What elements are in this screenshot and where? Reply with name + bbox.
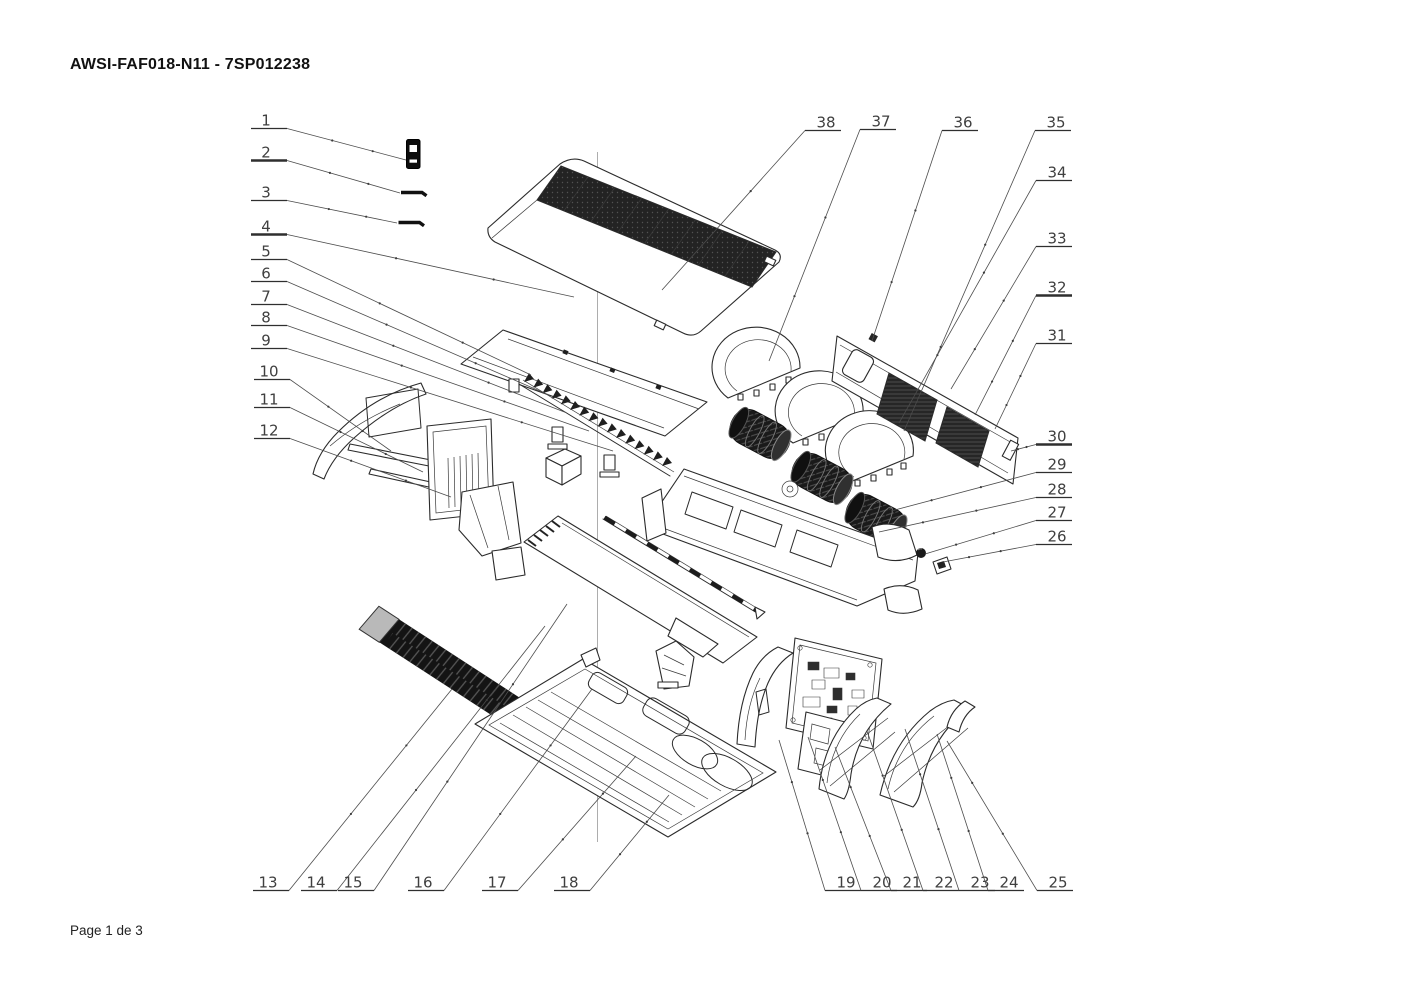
callout-3: 3 bbox=[251, 184, 397, 224]
leader-dot bbox=[549, 744, 551, 746]
leader-dot bbox=[379, 302, 381, 304]
leader-dot bbox=[329, 172, 331, 174]
leader-dot bbox=[415, 789, 417, 791]
leader-line bbox=[951, 247, 1036, 390]
leader-dot bbox=[974, 348, 976, 350]
leader-dot bbox=[488, 382, 490, 384]
part-number: 36 bbox=[953, 114, 972, 132]
callout-26: 26 bbox=[943, 528, 1072, 563]
leader-line bbox=[872, 131, 942, 342]
left-end-cap bbox=[313, 383, 426, 479]
part-number: 25 bbox=[1048, 874, 1067, 892]
part-number: 13 bbox=[258, 874, 277, 892]
leader-dot bbox=[968, 830, 970, 832]
top-cover bbox=[488, 159, 780, 335]
leader-dot bbox=[372, 150, 374, 152]
leader-dot bbox=[750, 190, 752, 192]
leader-dot bbox=[328, 208, 330, 210]
callout-31: 31 bbox=[995, 327, 1072, 430]
leader-dot bbox=[950, 777, 952, 779]
leader-dot bbox=[1000, 550, 1002, 552]
part-number: 31 bbox=[1047, 327, 1066, 345]
leader-line bbox=[287, 129, 406, 161]
leader-dot bbox=[405, 744, 407, 746]
leader-dot bbox=[395, 257, 397, 259]
leader-dot bbox=[646, 821, 648, 823]
leader-dot bbox=[410, 386, 412, 388]
leader-dot bbox=[937, 828, 939, 830]
mounting-bar-part bbox=[399, 223, 425, 226]
part-number: 10 bbox=[259, 363, 278, 381]
leader-dot bbox=[619, 853, 621, 855]
part-number: 35 bbox=[1046, 114, 1065, 132]
part-number: 27 bbox=[1047, 504, 1066, 522]
leader-dot bbox=[882, 775, 884, 777]
part-number: 12 bbox=[259, 422, 278, 440]
part-number: 26 bbox=[1047, 528, 1066, 546]
part-number: 28 bbox=[1047, 481, 1066, 499]
leader-dot bbox=[931, 499, 933, 501]
air-duct-wedge bbox=[459, 482, 525, 580]
leader-dot bbox=[327, 406, 329, 408]
drawing-sheet: AWSI-FAF018-N11 - 7SP012238 bbox=[0, 0, 1410, 997]
remote-control bbox=[407, 140, 421, 169]
leader-dot bbox=[521, 421, 523, 423]
leader-dot bbox=[562, 838, 564, 840]
leader-dot bbox=[984, 244, 986, 246]
leader-dot bbox=[339, 431, 341, 433]
leader-dot bbox=[475, 362, 477, 364]
leader-line bbox=[835, 747, 891, 891]
leader-dot bbox=[350, 460, 352, 462]
leader-line bbox=[290, 439, 451, 498]
leader-dot bbox=[1005, 404, 1007, 406]
leader-dot bbox=[793, 295, 795, 297]
leader-dot bbox=[919, 773, 921, 775]
callout-25: 25 bbox=[947, 741, 1073, 892]
callout-5: 5 bbox=[251, 243, 531, 376]
leader-dot bbox=[1002, 833, 1004, 835]
leader-dot bbox=[1003, 300, 1005, 302]
leader-dot bbox=[512, 683, 514, 685]
leader-dot bbox=[991, 380, 993, 382]
leader-line bbox=[943, 545, 1036, 563]
leader-line bbox=[769, 130, 860, 362]
part-number: 20 bbox=[872, 874, 891, 892]
part-number: 30 bbox=[1047, 428, 1066, 446]
leader-dot bbox=[701, 244, 703, 246]
part-number: 37 bbox=[871, 113, 890, 131]
leader-line bbox=[289, 689, 452, 891]
leader-dot bbox=[392, 345, 394, 347]
leader-dot bbox=[840, 831, 842, 833]
part-number: 9 bbox=[261, 332, 271, 350]
leader-line bbox=[975, 296, 1036, 416]
part-number: 8 bbox=[261, 309, 271, 327]
part-number: 22 bbox=[934, 874, 953, 892]
part-number: 19 bbox=[836, 874, 855, 892]
leader-dot bbox=[869, 835, 871, 837]
part-number: 33 bbox=[1047, 230, 1066, 248]
mounting-bar-part bbox=[401, 193, 427, 196]
leader-dot bbox=[940, 346, 942, 348]
leader-dot bbox=[968, 556, 970, 558]
leader-line bbox=[287, 201, 397, 224]
leader-dot bbox=[499, 813, 501, 815]
part-number: 6 bbox=[261, 265, 271, 283]
leader-dot bbox=[955, 544, 957, 546]
leader-line bbox=[925, 521, 1036, 555]
part-number: 5 bbox=[261, 243, 271, 261]
small-box-part bbox=[546, 449, 581, 485]
leader-dot bbox=[1012, 340, 1014, 342]
leader-dot bbox=[914, 209, 916, 211]
leader-dot bbox=[824, 216, 826, 218]
leader-dot bbox=[367, 183, 369, 185]
callout-32: 32 bbox=[975, 279, 1072, 416]
part-number: 16 bbox=[413, 874, 432, 892]
leader-dot bbox=[1019, 375, 1021, 377]
base-plate bbox=[475, 648, 776, 837]
leader-line bbox=[947, 741, 1037, 891]
grommet bbox=[916, 548, 926, 558]
leader-dot bbox=[350, 813, 352, 815]
leader-dot bbox=[891, 281, 893, 283]
callout-13: 13 bbox=[253, 689, 452, 892]
part-number: 17 bbox=[487, 874, 506, 892]
part-number: 29 bbox=[1047, 456, 1066, 474]
leader-line bbox=[287, 161, 400, 194]
leader-dot bbox=[971, 782, 973, 784]
part-number: 23 bbox=[970, 874, 989, 892]
clamp bbox=[933, 557, 951, 574]
leader-line bbox=[937, 734, 988, 891]
leader-dot bbox=[602, 793, 604, 795]
part-number: 4 bbox=[261, 218, 271, 236]
callout-2: 2 bbox=[251, 144, 400, 194]
leader-dot bbox=[493, 278, 495, 280]
page-number: Page 1 de 3 bbox=[70, 923, 143, 938]
callout-34: 34 bbox=[899, 164, 1072, 424]
control-box-end-cap bbox=[737, 647, 793, 747]
leader-dot bbox=[975, 510, 977, 512]
part-number: 18 bbox=[559, 874, 578, 892]
part-number: 32 bbox=[1047, 279, 1066, 297]
part-number: 14 bbox=[306, 874, 325, 892]
leader-dot bbox=[486, 699, 488, 701]
leader-dot bbox=[446, 781, 448, 783]
part-number: 15 bbox=[343, 874, 362, 892]
leader-dot bbox=[362, 430, 364, 432]
leader-line bbox=[891, 473, 1036, 512]
leader-dot bbox=[401, 364, 403, 366]
part-number: 34 bbox=[1047, 164, 1066, 182]
leader-dot bbox=[462, 342, 464, 344]
leader-dot bbox=[385, 324, 387, 326]
callout-1: 1 bbox=[251, 112, 406, 161]
leader-dot bbox=[922, 521, 924, 523]
leader-dot bbox=[385, 453, 387, 455]
leader-dot bbox=[983, 272, 985, 274]
leader-dot bbox=[331, 139, 333, 141]
part-number: 38 bbox=[816, 114, 835, 132]
leader-dot bbox=[901, 829, 903, 831]
leader-dot bbox=[980, 486, 982, 488]
leader-dot bbox=[822, 779, 824, 781]
leader-line bbox=[995, 344, 1036, 430]
leader-dot bbox=[791, 781, 793, 783]
part-number: 21 bbox=[902, 874, 921, 892]
leader-dot bbox=[993, 532, 995, 534]
front-panel bbox=[461, 330, 707, 436]
callout-36: 36 bbox=[872, 114, 978, 342]
callout-6: 6 bbox=[251, 265, 549, 396]
part-number: 2 bbox=[261, 144, 271, 162]
callout-24: 24 bbox=[937, 734, 1024, 892]
part-number: 7 bbox=[261, 288, 271, 306]
leader-dot bbox=[365, 216, 367, 218]
leader-line bbox=[287, 260, 531, 376]
leader-dot bbox=[503, 400, 505, 402]
callout-33: 33 bbox=[951, 230, 1072, 390]
leader-dot bbox=[850, 786, 852, 788]
leader-dot bbox=[806, 832, 808, 834]
exploded-diagram: 1234567891011121314151617181920212223242… bbox=[0, 0, 1410, 997]
part-number: 11 bbox=[259, 391, 278, 409]
leader-dot bbox=[1017, 448, 1019, 450]
part-number: 24 bbox=[999, 874, 1018, 892]
callout-35: 35 bbox=[904, 114, 1071, 432]
callout-30: 30 bbox=[1011, 428, 1072, 452]
part-number: 3 bbox=[261, 184, 271, 202]
part-number: 1 bbox=[261, 112, 271, 130]
leader-dot bbox=[405, 480, 407, 482]
leader-dot bbox=[1025, 446, 1027, 448]
filter-mesh-2 bbox=[936, 407, 989, 467]
